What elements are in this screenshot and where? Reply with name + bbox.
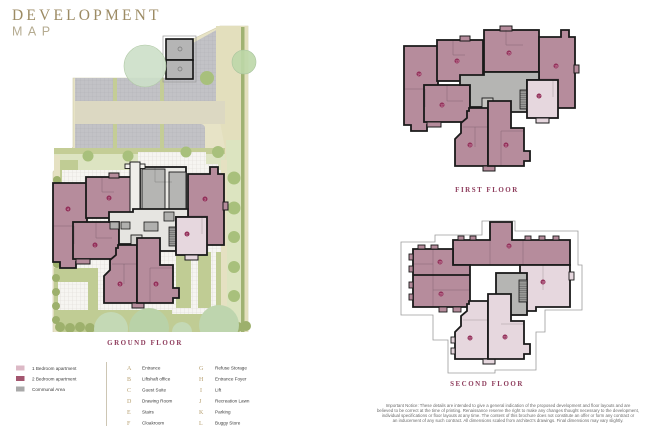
- svg-text:20: 20: [439, 292, 443, 296]
- svg-text:Buggy Store: Buggy Store: [215, 421, 241, 426]
- svg-text:an inducement of any such cont: an inducement of any such contract. All …: [393, 418, 624, 423]
- svg-text:2: 2: [108, 197, 110, 201]
- svg-text:F: F: [127, 421, 131, 427]
- svg-text:11: 11: [504, 143, 508, 147]
- svg-text:DEVELOPMENT: DEVELOPMENT: [12, 7, 162, 24]
- svg-text:17: 17: [537, 94, 541, 98]
- svg-text:15: 15: [507, 51, 511, 55]
- svg-text:12: 12: [440, 103, 444, 107]
- svg-text:22: 22: [468, 336, 472, 340]
- svg-text:13: 13: [455, 59, 459, 63]
- svg-text:Stairs: Stairs: [142, 410, 154, 415]
- svg-text:18: 18: [541, 280, 545, 284]
- svg-text:FIRST FLOOR: FIRST FLOOR: [455, 186, 519, 194]
- svg-text:B: B: [127, 377, 131, 383]
- svg-text:L: L: [199, 421, 203, 427]
- svg-text:Guest Suite: Guest Suite: [142, 388, 166, 393]
- svg-text:10: 10: [468, 143, 472, 147]
- svg-text:4: 4: [67, 208, 69, 212]
- svg-text:A: A: [127, 366, 132, 372]
- svg-text:21: 21: [507, 244, 511, 248]
- svg-text:19: 19: [438, 260, 442, 264]
- svg-text:SECOND FLOOR: SECOND FLOOR: [450, 380, 524, 388]
- svg-text:5: 5: [119, 283, 121, 287]
- svg-text:6: 6: [155, 283, 157, 287]
- svg-text:Drawing Room: Drawing Room: [142, 399, 173, 404]
- svg-text:I: I: [200, 388, 202, 394]
- svg-text:Lift: Lift: [215, 388, 222, 393]
- svg-text:G: G: [199, 366, 204, 372]
- svg-text:C: C: [127, 388, 131, 394]
- svg-text:Refuse Storage: Refuse Storage: [215, 366, 247, 371]
- svg-text:Communal Area: Communal Area: [32, 387, 65, 392]
- svg-text:3: 3: [204, 198, 206, 202]
- svg-text:Liftshaft office: Liftshaft office: [142, 377, 171, 382]
- svg-text:Parking: Parking: [215, 410, 231, 415]
- svg-text:J: J: [199, 399, 202, 405]
- svg-text:D: D: [127, 399, 132, 405]
- svg-text:K: K: [199, 410, 204, 416]
- svg-text:1: 1: [94, 244, 96, 248]
- svg-text:GROUND FLOOR: GROUND FLOOR: [107, 339, 183, 347]
- svg-text:Entrance: Entrance: [142, 366, 161, 371]
- svg-text:E: E: [127, 410, 131, 416]
- svg-text:2 Bedroom apartment: 2 Bedroom apartment: [32, 377, 77, 382]
- svg-text:Recreation Lawn: Recreation Lawn: [215, 399, 250, 404]
- svg-text:Cloakroom: Cloakroom: [142, 421, 164, 426]
- svg-text:16: 16: [554, 64, 558, 68]
- svg-text:1 Bedroom apartment: 1 Bedroom apartment: [32, 366, 77, 371]
- svg-text:23: 23: [503, 335, 507, 339]
- svg-text:Entrance Foyer: Entrance Foyer: [215, 377, 247, 382]
- svg-text:MAP: MAP: [12, 25, 56, 39]
- svg-text:H: H: [199, 377, 204, 383]
- svg-text:14: 14: [417, 72, 421, 76]
